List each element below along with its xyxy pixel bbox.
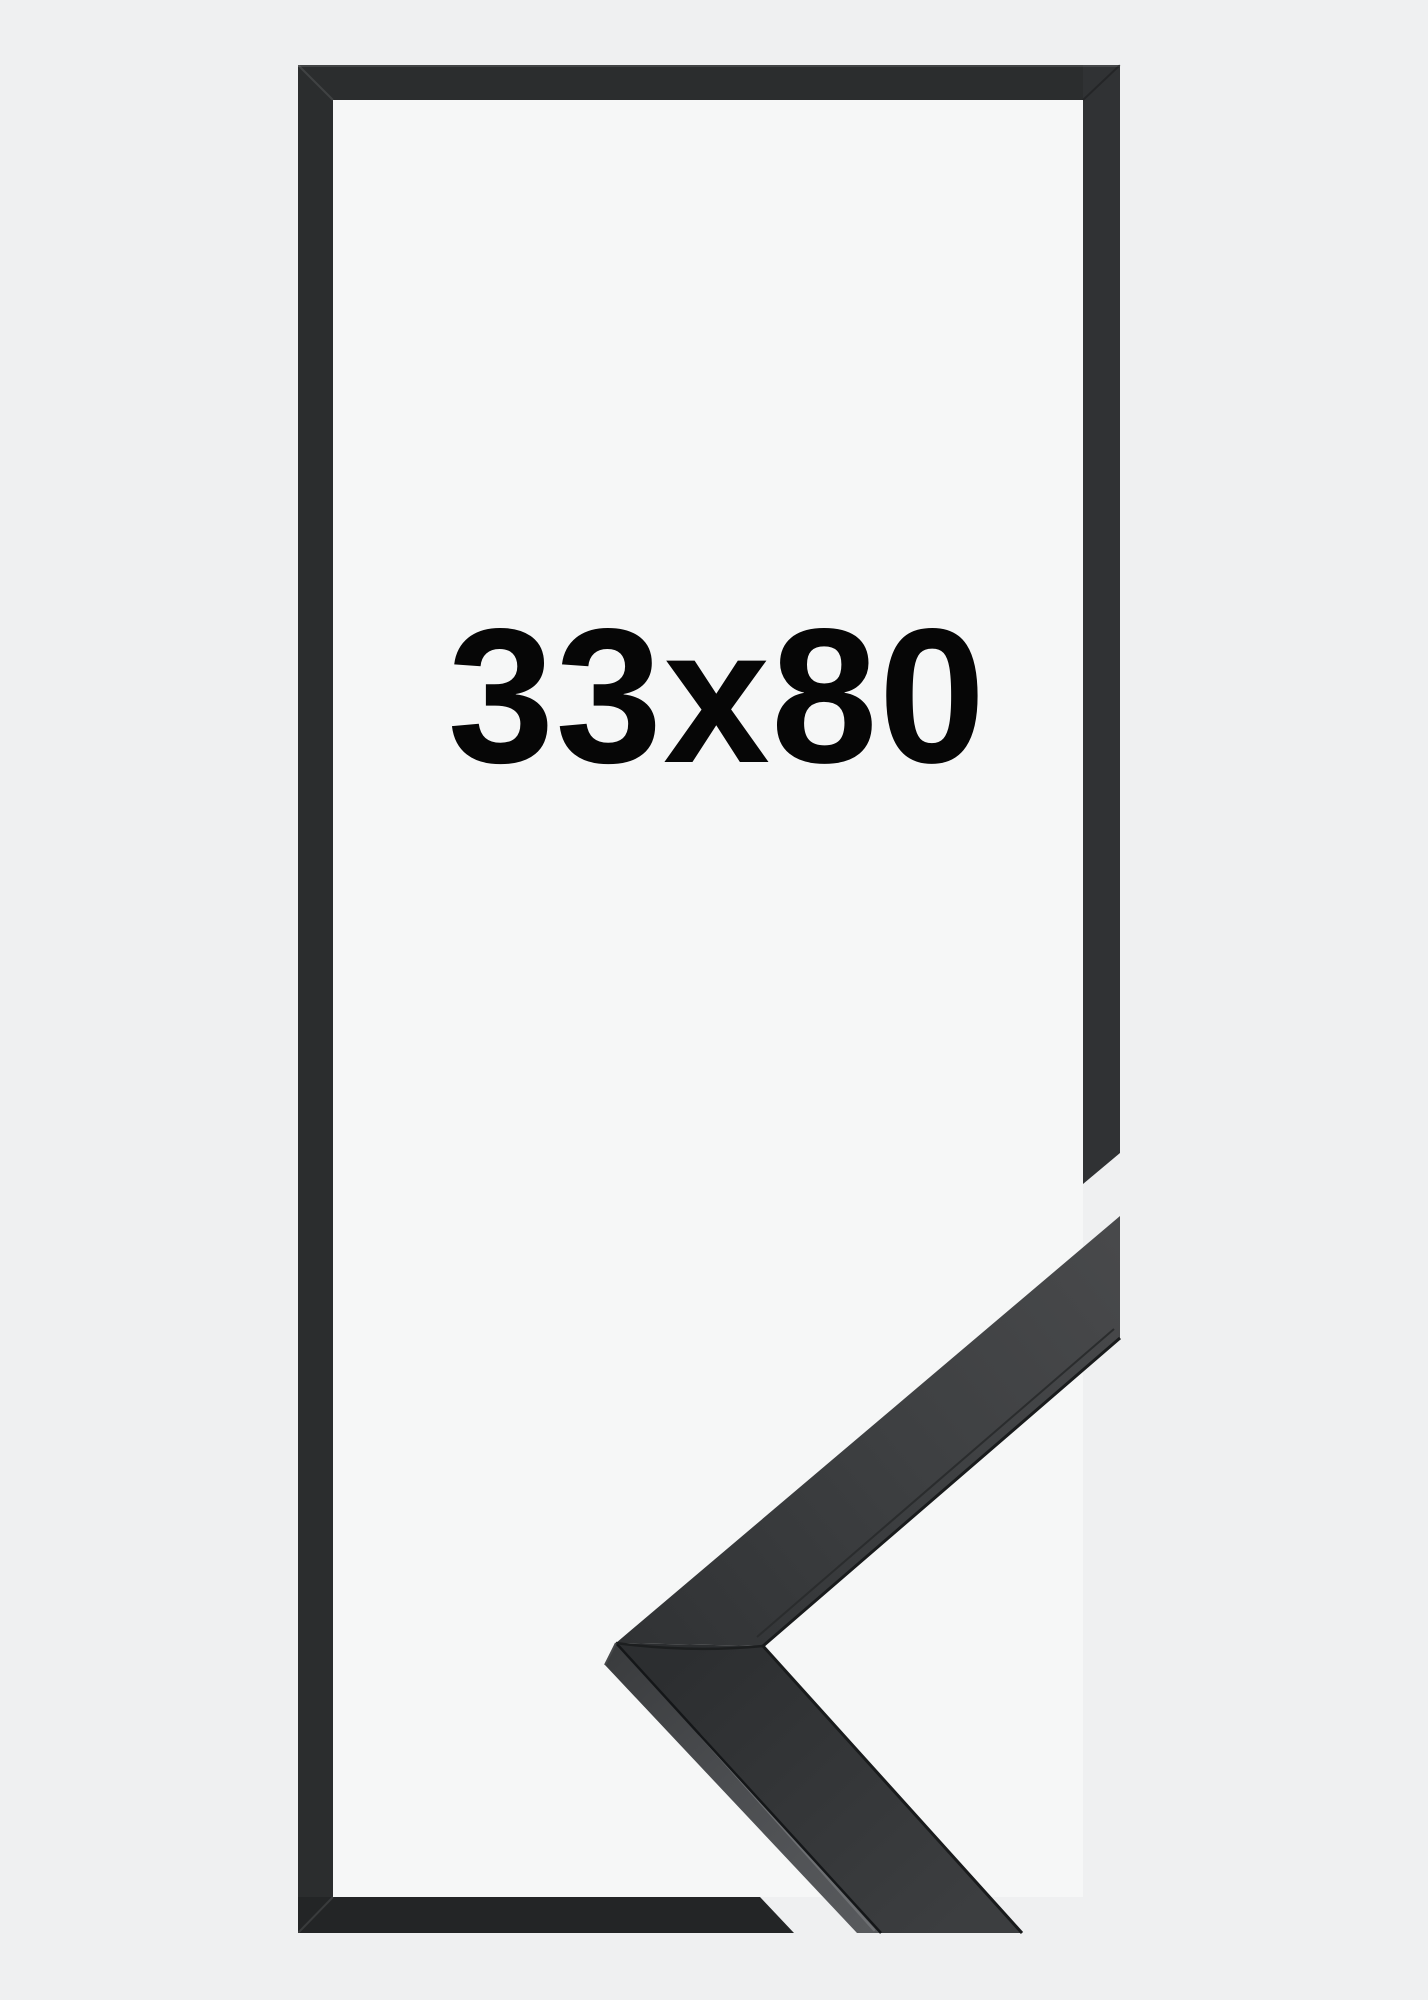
frame-left-bar (298, 65, 333, 1933)
frame-product-graphic: 33x80 (0, 0, 1428, 2000)
size-label: 33x80 (448, 588, 987, 803)
frame-bottom-bar (298, 1897, 794, 1933)
product-image-frame: 33x80 (0, 0, 1428, 2000)
frame-right-bar (1083, 65, 1120, 1184)
frame-top-bar (298, 65, 1120, 100)
